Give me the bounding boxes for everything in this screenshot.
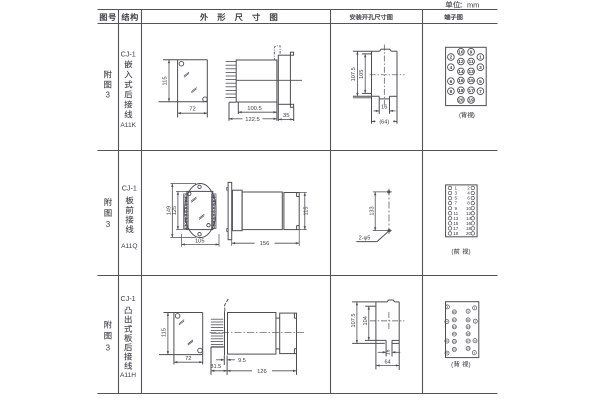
svg-text:): ) bbox=[468, 361, 470, 368]
svg-text:156: 156 bbox=[260, 241, 270, 247]
svg-text:107.5: 107.5 bbox=[351, 67, 357, 81]
svg-text:7: 7 bbox=[479, 89, 482, 94]
svg-text:10: 10 bbox=[453, 310, 457, 314]
svg-text:19: 19 bbox=[466, 347, 470, 351]
svg-text:20: 20 bbox=[458, 98, 464, 103]
svg-text:10: 10 bbox=[458, 49, 464, 54]
svg-text:14: 14 bbox=[453, 325, 457, 329]
svg-text:A11K: A11K bbox=[120, 122, 136, 129]
svg-text:72: 72 bbox=[189, 107, 195, 113]
svg-text:12: 12 bbox=[453, 318, 457, 322]
svg-text:3: 3 bbox=[106, 343, 111, 352]
svg-text:16: 16 bbox=[453, 332, 457, 336]
svg-text:CJ-1: CJ-1 bbox=[121, 294, 136, 303]
svg-text:6: 6 bbox=[450, 79, 453, 84]
svg-text:4: 4 bbox=[446, 320, 448, 324]
svg-text:72: 72 bbox=[185, 356, 191, 362]
svg-text:107.5: 107.5 bbox=[351, 314, 357, 328]
svg-text:9: 9 bbox=[470, 49, 473, 54]
svg-text:3: 3 bbox=[479, 65, 482, 70]
svg-text:CJ-1: CJ-1 bbox=[121, 49, 136, 58]
svg-text:7: 7 bbox=[473, 351, 475, 355]
svg-text:A11Q: A11Q bbox=[121, 243, 137, 250]
svg-text:3: 3 bbox=[106, 220, 111, 229]
svg-text:11: 11 bbox=[466, 318, 469, 322]
svg-text:12: 12 bbox=[458, 59, 464, 64]
svg-text:105: 105 bbox=[195, 238, 205, 244]
svg-text:115: 115 bbox=[162, 328, 168, 337]
svg-text:16: 16 bbox=[381, 104, 387, 110]
svg-text:2: 2 bbox=[447, 305, 449, 309]
svg-text:(64): (64) bbox=[379, 119, 389, 125]
svg-text:3: 3 bbox=[474, 319, 476, 323]
svg-text:16: 16 bbox=[386, 349, 392, 355]
svg-text:3: 3 bbox=[105, 91, 110, 100]
svg-text:20: 20 bbox=[466, 231, 472, 236]
svg-text:11: 11 bbox=[469, 59, 474, 64]
svg-text:17: 17 bbox=[466, 339, 470, 343]
svg-text:31.5: 31.5 bbox=[210, 364, 221, 370]
svg-text:9.5: 9.5 bbox=[238, 358, 246, 364]
svg-text:115: 115 bbox=[163, 76, 169, 85]
svg-text:1: 1 bbox=[474, 306, 476, 310]
svg-text:100.5: 100.5 bbox=[247, 106, 262, 112]
svg-text:CJ-1: CJ-1 bbox=[122, 184, 137, 193]
svg-text:A11H: A11H bbox=[120, 372, 136, 379]
svg-text:16: 16 bbox=[458, 78, 464, 83]
svg-text:15: 15 bbox=[466, 332, 470, 336]
svg-text:17: 17 bbox=[468, 88, 474, 93]
svg-text:14: 14 bbox=[458, 69, 464, 74]
svg-text:35: 35 bbox=[283, 113, 289, 119]
svg-text:64: 64 bbox=[384, 359, 390, 365]
svg-text:19: 19 bbox=[468, 98, 474, 103]
svg-text:13: 13 bbox=[468, 69, 474, 74]
svg-text:1: 1 bbox=[479, 55, 482, 60]
svg-text:9: 9 bbox=[467, 309, 469, 313]
svg-text:5: 5 bbox=[479, 79, 482, 84]
svg-text:133: 133 bbox=[369, 206, 375, 215]
svg-text:18: 18 bbox=[453, 340, 457, 344]
svg-text:4: 4 bbox=[450, 65, 453, 70]
svg-text:): ) bbox=[468, 249, 470, 256]
svg-text:19: 19 bbox=[453, 231, 459, 236]
svg-text:8: 8 bbox=[450, 89, 453, 94]
svg-text:122.5: 122.5 bbox=[245, 117, 260, 123]
svg-text:104: 104 bbox=[363, 316, 369, 325]
svg-text:13: 13 bbox=[466, 325, 470, 329]
svg-text:125: 125 bbox=[172, 206, 178, 215]
svg-text:18: 18 bbox=[458, 88, 464, 93]
svg-text:20: 20 bbox=[453, 348, 457, 352]
svg-text:126: 126 bbox=[257, 369, 267, 375]
svg-text:mm: mm bbox=[467, 0, 479, 9]
svg-text:105: 105 bbox=[359, 70, 365, 79]
svg-text:5: 5 bbox=[474, 339, 476, 343]
svg-text:): ) bbox=[473, 112, 475, 119]
svg-text:115: 115 bbox=[304, 207, 310, 216]
svg-text:6: 6 bbox=[446, 339, 448, 343]
svg-text:8: 8 bbox=[446, 351, 448, 355]
svg-text:15: 15 bbox=[468, 78, 474, 83]
svg-text:2-φ5: 2-φ5 bbox=[359, 236, 371, 242]
svg-text:2: 2 bbox=[450, 55, 453, 60]
